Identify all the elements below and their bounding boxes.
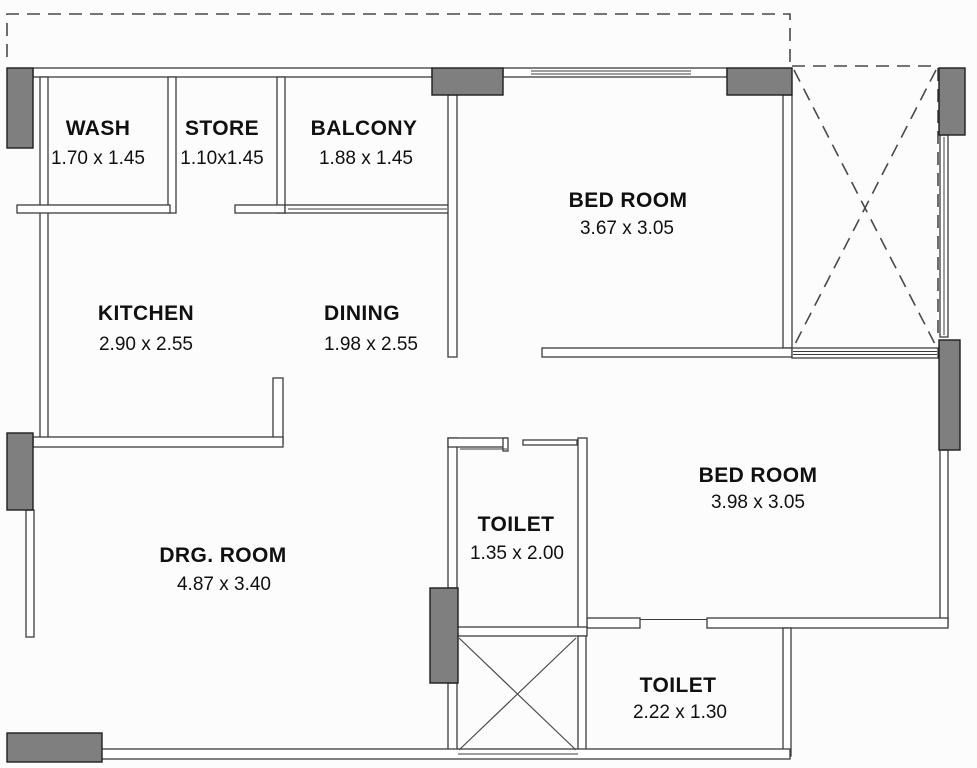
wall-segment bbox=[100, 749, 790, 759]
wall-segment bbox=[940, 450, 948, 625]
column bbox=[939, 68, 965, 135]
wall-segment bbox=[448, 438, 457, 588]
window-lines bbox=[288, 71, 944, 754]
room-dims-kitchen: 2.90 x 2.55 bbox=[99, 334, 193, 355]
room-label-toilet-bottom: TOILET bbox=[640, 674, 717, 697]
column bbox=[7, 733, 102, 762]
wall-segment bbox=[707, 618, 948, 628]
wall-segment bbox=[168, 77, 176, 213]
room-bedroom-top: BED ROOM 3.67 x 3.05 bbox=[569, 189, 688, 239]
wall-segment bbox=[457, 627, 587, 636]
room-wash: WASH 1.70 x 1.45 bbox=[51, 117, 145, 169]
wall-segment bbox=[587, 618, 640, 628]
room-dims-toilet-center: 1.35 x 2.00 bbox=[470, 543, 564, 564]
room-dining: DINING 1.98 x 2.55 bbox=[324, 302, 418, 355]
room-store: STORE 1.10x1.45 bbox=[180, 117, 263, 169]
room-label-dining: DINING bbox=[324, 302, 400, 325]
column bbox=[727, 68, 792, 95]
wall-segment bbox=[503, 68, 727, 77]
room-drawing-room: DRG. ROOM 4.87 x 3.40 bbox=[159, 544, 286, 595]
room-dims-store: 1.10x1.45 bbox=[180, 148, 263, 169]
column bbox=[432, 68, 503, 95]
wall-segment bbox=[578, 636, 586, 752]
room-dims-bedroom-top: 3.67 x 3.05 bbox=[580, 218, 674, 239]
wall-segment bbox=[783, 95, 792, 348]
toilet-door-leaf bbox=[523, 440, 577, 445]
kitchen-partition-wall bbox=[273, 378, 283, 443]
room-dims-toilet-bottom: 2.22 x 1.30 bbox=[633, 702, 727, 723]
room-label-balcony: BALCONY bbox=[311, 117, 418, 140]
wall-segment bbox=[277, 77, 285, 213]
room-dims-drawing-room: 4.87 x 3.40 bbox=[177, 574, 271, 595]
column bbox=[430, 588, 458, 683]
room-bedroom-right: BED ROOM 3.98 x 3.05 bbox=[699, 464, 818, 513]
room-label-drawing-room: DRG. ROOM bbox=[159, 544, 286, 567]
room-label-kitchen: KITCHEN bbox=[98, 302, 194, 325]
wall-segment bbox=[578, 438, 587, 628]
room-toilet-bottom: TOILET 2.22 x 1.30 bbox=[633, 674, 727, 723]
walls bbox=[17, 68, 948, 759]
wall-segment bbox=[26, 510, 34, 637]
open-terrace-area bbox=[792, 66, 938, 346]
room-label-toilet-center: TOILET bbox=[478, 513, 555, 536]
column bbox=[7, 433, 33, 510]
wall-segment bbox=[542, 348, 792, 357]
room-label-store: STORE bbox=[185, 117, 259, 140]
column bbox=[7, 68, 33, 148]
wall-segment bbox=[448, 438, 507, 447]
column bbox=[939, 340, 960, 450]
wall-segment bbox=[448, 95, 457, 357]
wall-segment bbox=[783, 628, 791, 756]
wall-segment bbox=[33, 68, 432, 77]
room-label-bedroom-right: BED ROOM bbox=[699, 464, 818, 487]
wall-segment bbox=[17, 205, 170, 213]
room-dims-bedroom-right: 3.98 x 3.05 bbox=[711, 492, 805, 513]
room-dims-wash: 1.70 x 1.45 bbox=[51, 148, 145, 169]
room-dims-balcony: 1.88 x 1.45 bbox=[319, 148, 413, 169]
room-label-wash: WASH bbox=[66, 117, 131, 140]
wall-segment bbox=[40, 77, 48, 443]
floor-plan: WASH 1.70 x 1.45 STORE 1.10x1.45 BALCONY… bbox=[0, 0, 977, 768]
room-kitchen: KITCHEN 2.90 x 2.55 bbox=[98, 302, 194, 355]
kitchen-partition-wall bbox=[33, 437, 283, 447]
duct-shaft bbox=[459, 638, 576, 750]
room-dims-dining: 1.98 x 2.55 bbox=[324, 334, 418, 355]
room-balcony: BALCONY 1.88 x 1.45 bbox=[311, 117, 418, 169]
floor-plan-drawing: WASH 1.70 x 1.45 STORE 1.10x1.45 BALCONY… bbox=[0, 0, 977, 768]
wall-segment bbox=[235, 205, 285, 213]
terrace-window bbox=[792, 348, 938, 358]
wall-segment bbox=[448, 683, 457, 750]
room-label-bedroom-top: BED ROOM bbox=[569, 189, 688, 212]
room-toilet-center: TOILET 1.35 x 2.00 bbox=[470, 513, 564, 564]
columns bbox=[7, 68, 965, 762]
property-boundary-dashed-line bbox=[7, 14, 790, 65]
